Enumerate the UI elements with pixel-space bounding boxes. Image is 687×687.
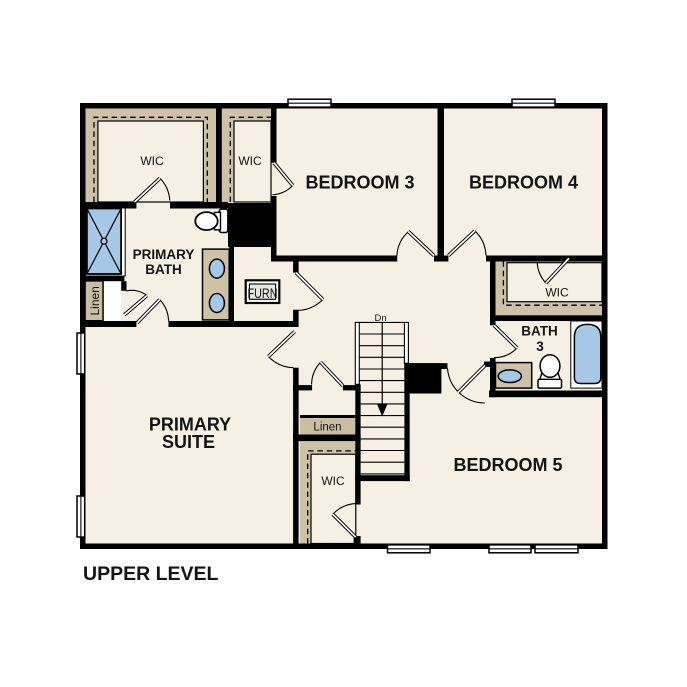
svg-text:Dn: Dn (375, 313, 387, 324)
svg-text:3: 3 (536, 339, 544, 354)
svg-text:Linen: Linen (88, 286, 102, 315)
svg-text:FURN: FURN (248, 286, 278, 301)
svg-text:SUITE: SUITE (162, 432, 215, 452)
svg-text:BEDROOM 4: BEDROOM 4 (469, 173, 578, 193)
svg-text:WIC: WIC (238, 154, 262, 168)
svg-text:Linen: Linen (313, 422, 341, 434)
svg-text:BATH: BATH (521, 324, 558, 339)
svg-text:BEDROOM 5: BEDROOM 5 (453, 455, 562, 475)
svg-text:WIC: WIC (140, 154, 164, 168)
svg-text:BEDROOM 3: BEDROOM 3 (305, 173, 414, 193)
svg-text:WIC: WIC (545, 286, 569, 300)
svg-text:PRIMARY: PRIMARY (133, 247, 195, 262)
svg-text:WIC: WIC (321, 474, 345, 488)
svg-text:UPPER LEVEL: UPPER LEVEL (83, 563, 219, 585)
svg-text:BATH: BATH (145, 262, 182, 277)
